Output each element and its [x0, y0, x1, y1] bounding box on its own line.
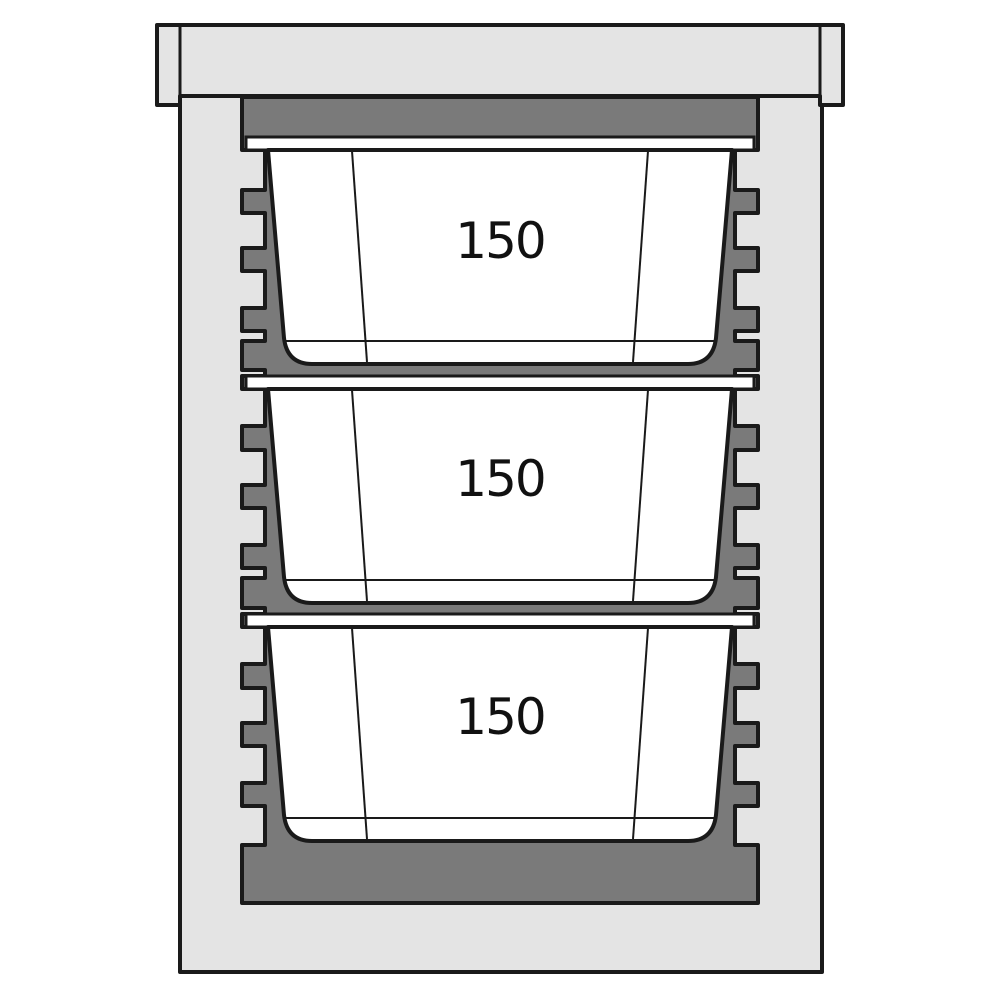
- container-depth-label-3: 150: [455, 688, 544, 746]
- lid-slab: [157, 25, 843, 105]
- box-lid: [157, 25, 843, 105]
- product-diagram: 150 150 150: [0, 0, 1000, 1000]
- gn-container-2: 150: [246, 376, 754, 603]
- gn-container-1: 150: [246, 137, 754, 364]
- container-depth-label-2: 150: [455, 450, 544, 508]
- gn-container-3: 150: [246, 614, 754, 841]
- container-depth-label-1: 150: [455, 212, 544, 270]
- thermobox-cross-section-svg: 150 150 150: [0, 0, 1000, 1000]
